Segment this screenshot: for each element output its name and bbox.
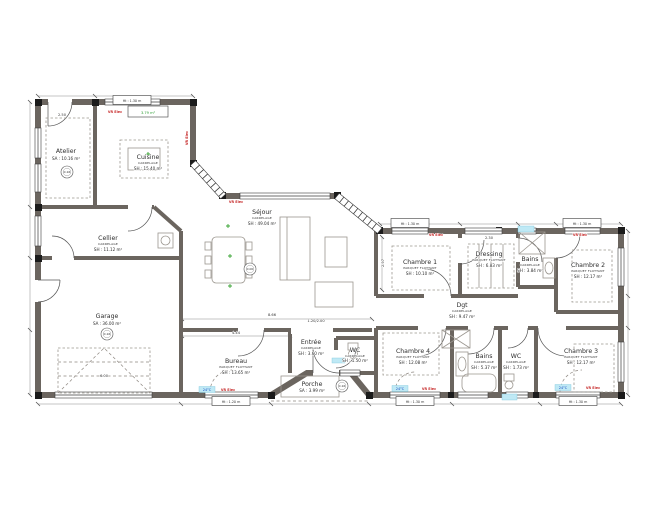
toilet-wc2: [504, 374, 514, 389]
room-labels: AtelierSA : 10.16 m² CuisineCARRELAGESH …: [52, 148, 605, 393]
svg-text:SH : 1.50 m²: SH : 1.50 m²: [342, 358, 368, 363]
room-label-chambre3: Chambre 3PARQUET FLOTTANTSH : 12.17 m²: [564, 348, 598, 365]
svg-text:SH : 1.73 m²: SH : 1.73 m²: [503, 365, 529, 370]
svg-text:Chambre 3: Chambre 3: [564, 348, 598, 355]
svg-text:SH : 3.60 m²: SH : 3.60 m²: [298, 351, 324, 356]
svg-text:PARQUET FLOTTANT: PARQUET FLOTTANT: [571, 269, 604, 273]
window-height-label: Ht : 1.30 m: [573, 222, 592, 226]
svg-text:SH : 5.37 m²: SH : 5.37 m²: [471, 365, 497, 370]
shutter-annotation: VR Elec: [422, 387, 436, 391]
svg-text:Chambre 2: Chambre 2: [571, 262, 605, 269]
dimension-label: 1.20/2.00: [307, 319, 325, 323]
svg-text:Cellier: Cellier: [98, 235, 118, 242]
room-label-entree: EntréeCARRELAGESH : 3.60 m²: [298, 338, 324, 356]
window-height-label: Ht : 1.30 m: [406, 400, 425, 404]
floor-plan-page: 3.79 m² AtelierSA : 10.16 m² CuisineCARR…: [0, 0, 656, 525]
svg-text:Dressing: Dressing: [476, 251, 503, 258]
shutter-annotation: VR Elec: [586, 386, 600, 390]
svg-text:SA : 10.16 m²: SA : 10.16 m²: [52, 156, 80, 161]
svg-text:CARRELAGE: CARRELAGE: [520, 263, 540, 267]
level-value: 0.16: [64, 170, 71, 174]
svg-text:PARQUET FLOTTANT: PARQUET FLOTTANT: [403, 266, 436, 270]
room-label-chambre4: Chambre 4PARQUET FLOTTANTSH : 12.08 m²: [396, 348, 430, 365]
svg-text:SH : 11.12 m²: SH : 11.12 m²: [94, 247, 123, 252]
svg-text:SH : 13.65 m²: SH : 13.65 m²: [222, 370, 251, 375]
window-height-label: Ht : 1.30 m: [401, 222, 420, 226]
interior-walls: [38, 102, 621, 395]
dim-label-layer: 2.506.008.664.441.20/2.002.302.97: [58, 113, 494, 378]
svg-text:Chambre 1: Chambre 1: [403, 259, 437, 266]
diagonal-window-kitchen: [190, 161, 225, 199]
shutter-annotation: VR Elec: [229, 200, 243, 204]
svg-text:Cuisine: Cuisine: [137, 154, 160, 161]
svg-text:CARRELAGE: CARRELAGE: [252, 216, 272, 220]
svg-text:Dgt: Dgt: [456, 302, 468, 309]
svg-text:SA : 3.99 m²: SA : 3.99 m²: [299, 388, 325, 393]
floor-plan-drawing: 3.79 m² AtelierSA : 10.16 m² CuisineCARR…: [0, 0, 656, 525]
level-value: 0.16: [104, 332, 111, 336]
room-label-garage: GarageSA : 36.00 m²: [93, 313, 121, 326]
svg-text:Chambre 4: Chambre 4: [396, 348, 430, 355]
level-value: 0.16: [339, 384, 346, 388]
dimension-label: 6.00: [100, 374, 109, 378]
temperature-annotation: 24°C: [396, 387, 405, 391]
room-label-bains1: BainsCARRELAGESH : 3.84 m²: [517, 256, 543, 273]
svg-text:Entrée: Entrée: [301, 338, 321, 346]
svg-text:SH : 3.84 m²: SH : 3.84 m²: [517, 268, 543, 273]
dimension-label: 2.50: [58, 113, 67, 117]
room-label-cellier: CellierCARRELAGESH : 11.12 m²: [94, 235, 123, 252]
level-marker-layer: 0.160.160.000.16: [61, 166, 348, 392]
laundry-machine: [158, 233, 173, 248]
svg-text:Bureau: Bureau: [225, 358, 247, 365]
room-label-dressing: DressingPARQUET FLOTTANTSH : 6.83 m²: [472, 251, 505, 268]
svg-text:Porche: Porche: [302, 381, 323, 388]
svg-text:SA : 36.00 m²: SA : 36.00 m²: [93, 321, 121, 326]
window-height-label: Ht : 1.30 m: [569, 400, 588, 404]
room-label-wc2: WCCARRELAGESH : 1.73 m²: [503, 353, 529, 370]
sofa-2: [315, 282, 353, 307]
green-area-tag: 3.79 m²: [141, 111, 156, 115]
svg-text:Bains: Bains: [522, 256, 539, 263]
room-label-chambre2: Chambre 2PARQUET FLOTTANTSH : 12.17 m²: [571, 262, 605, 279]
svg-text:SH : 12.08 m²: SH : 12.08 m²: [399, 360, 428, 365]
room-label-sejour: SéjourCARRELAGESH : 49.04 m²: [248, 208, 277, 226]
room-label-cuisine: CuisineCARRELAGESH : 15.40 m²: [134, 154, 163, 171]
svg-text:WC: WC: [511, 353, 521, 360]
coffee-table: [325, 237, 347, 267]
bathtub: [462, 374, 496, 392]
svg-text:PARQUET FLOTTANT: PARQUET FLOTTANT: [396, 355, 429, 359]
svg-text:WC: WC: [350, 347, 360, 354]
room-label-dgt: DgtCARRELAGESH : 9.47 m²: [449, 302, 475, 319]
dimension-label: 4.44: [232, 331, 241, 335]
shutter-annotation: VR Elec: [185, 131, 189, 145]
svg-text:SH : 15.40 m²: SH : 15.40 m²: [134, 166, 163, 171]
svg-text:CARRELAGE: CARRELAGE: [98, 242, 118, 246]
svg-text:Bains: Bains: [476, 353, 493, 360]
shutter-annotation: VR Elec: [221, 388, 235, 392]
shutter-annotation: VR Elec: [108, 110, 122, 114]
svg-text:SH : 12.17 m²: SH : 12.17 m²: [574, 274, 603, 279]
svg-text:CARRELAGE: CARRELAGE: [452, 309, 472, 313]
blue-tag-layer: 24°C24°C24°C: [199, 385, 571, 393]
room-label-porche: PorcheSA : 3.99 m²: [299, 381, 325, 393]
svg-text:SH : 6.83 m²: SH : 6.83 m²: [476, 263, 502, 268]
dimension-label: 2.97: [381, 259, 385, 267]
svg-text:Séjour: Séjour: [252, 208, 272, 216]
room-label-bureau: BureauPARQUET FLOTTANTSH : 13.65 m²: [219, 358, 252, 375]
shutter-annotation: VR Elec: [573, 233, 587, 237]
room-label-atelier: AtelierSA : 10.16 m²: [52, 148, 80, 161]
dining-table: [212, 237, 245, 283]
svg-text:Atelier: Atelier: [56, 148, 77, 155]
shower-bains2: [442, 330, 470, 348]
svg-text:PARQUET FLOTTANT: PARQUET FLOTTANT: [564, 355, 597, 359]
room-label-chambre1: Chambre 1PARQUET FLOTTANTSH : 10.10 m²: [403, 259, 437, 276]
temperature-annotation: 24°C: [559, 386, 568, 390]
svg-text:CARRELAGE: CARRELAGE: [474, 360, 494, 364]
shower-bains1: [519, 232, 545, 254]
svg-text:CARRELAGE: CARRELAGE: [506, 360, 526, 364]
exterior-wall: [38, 102, 621, 395]
svg-text:PARQUET FLOTTANT: PARQUET FLOTTANT: [219, 365, 252, 369]
svg-text:CARRELAGE: CARRELAGE: [301, 346, 321, 350]
svg-text:Garage: Garage: [96, 313, 119, 320]
level-value: 0.00: [247, 267, 254, 271]
svg-text:SH : 12.17 m²: SH : 12.17 m²: [567, 360, 596, 365]
svg-text:SH : 10.10 m²: SH : 10.10 m²: [406, 271, 435, 276]
window-height-label: Ht : 1.20 m: [222, 400, 241, 404]
svg-text:SH : 9.47 m²: SH : 9.47 m²: [449, 314, 475, 319]
svg-text:CARRELAGE: CARRELAGE: [138, 161, 158, 165]
dimension-label: 8.66: [268, 313, 277, 317]
window-height-label: Ht : 1.30 m: [123, 99, 142, 103]
diagonal-window-sejour: [335, 193, 382, 233]
svg-text:PARQUET FLOTTANT: PARQUET FLOTTANT: [472, 258, 505, 262]
svg-text:SH : 49.04 m²: SH : 49.04 m²: [248, 221, 277, 226]
room-label-bains2: BainsCARRELAGESH : 5.37 m²: [471, 353, 497, 370]
parking-zone: [58, 348, 150, 393]
sofa: [280, 217, 310, 280]
room-label-wc1: WCCARRELAGESH : 1.50 m²: [342, 347, 368, 363]
shutter-annotation: VR Elec: [429, 233, 443, 237]
temperature-annotation: 24°C: [203, 388, 212, 392]
dimension-label: 2.30: [485, 236, 494, 240]
